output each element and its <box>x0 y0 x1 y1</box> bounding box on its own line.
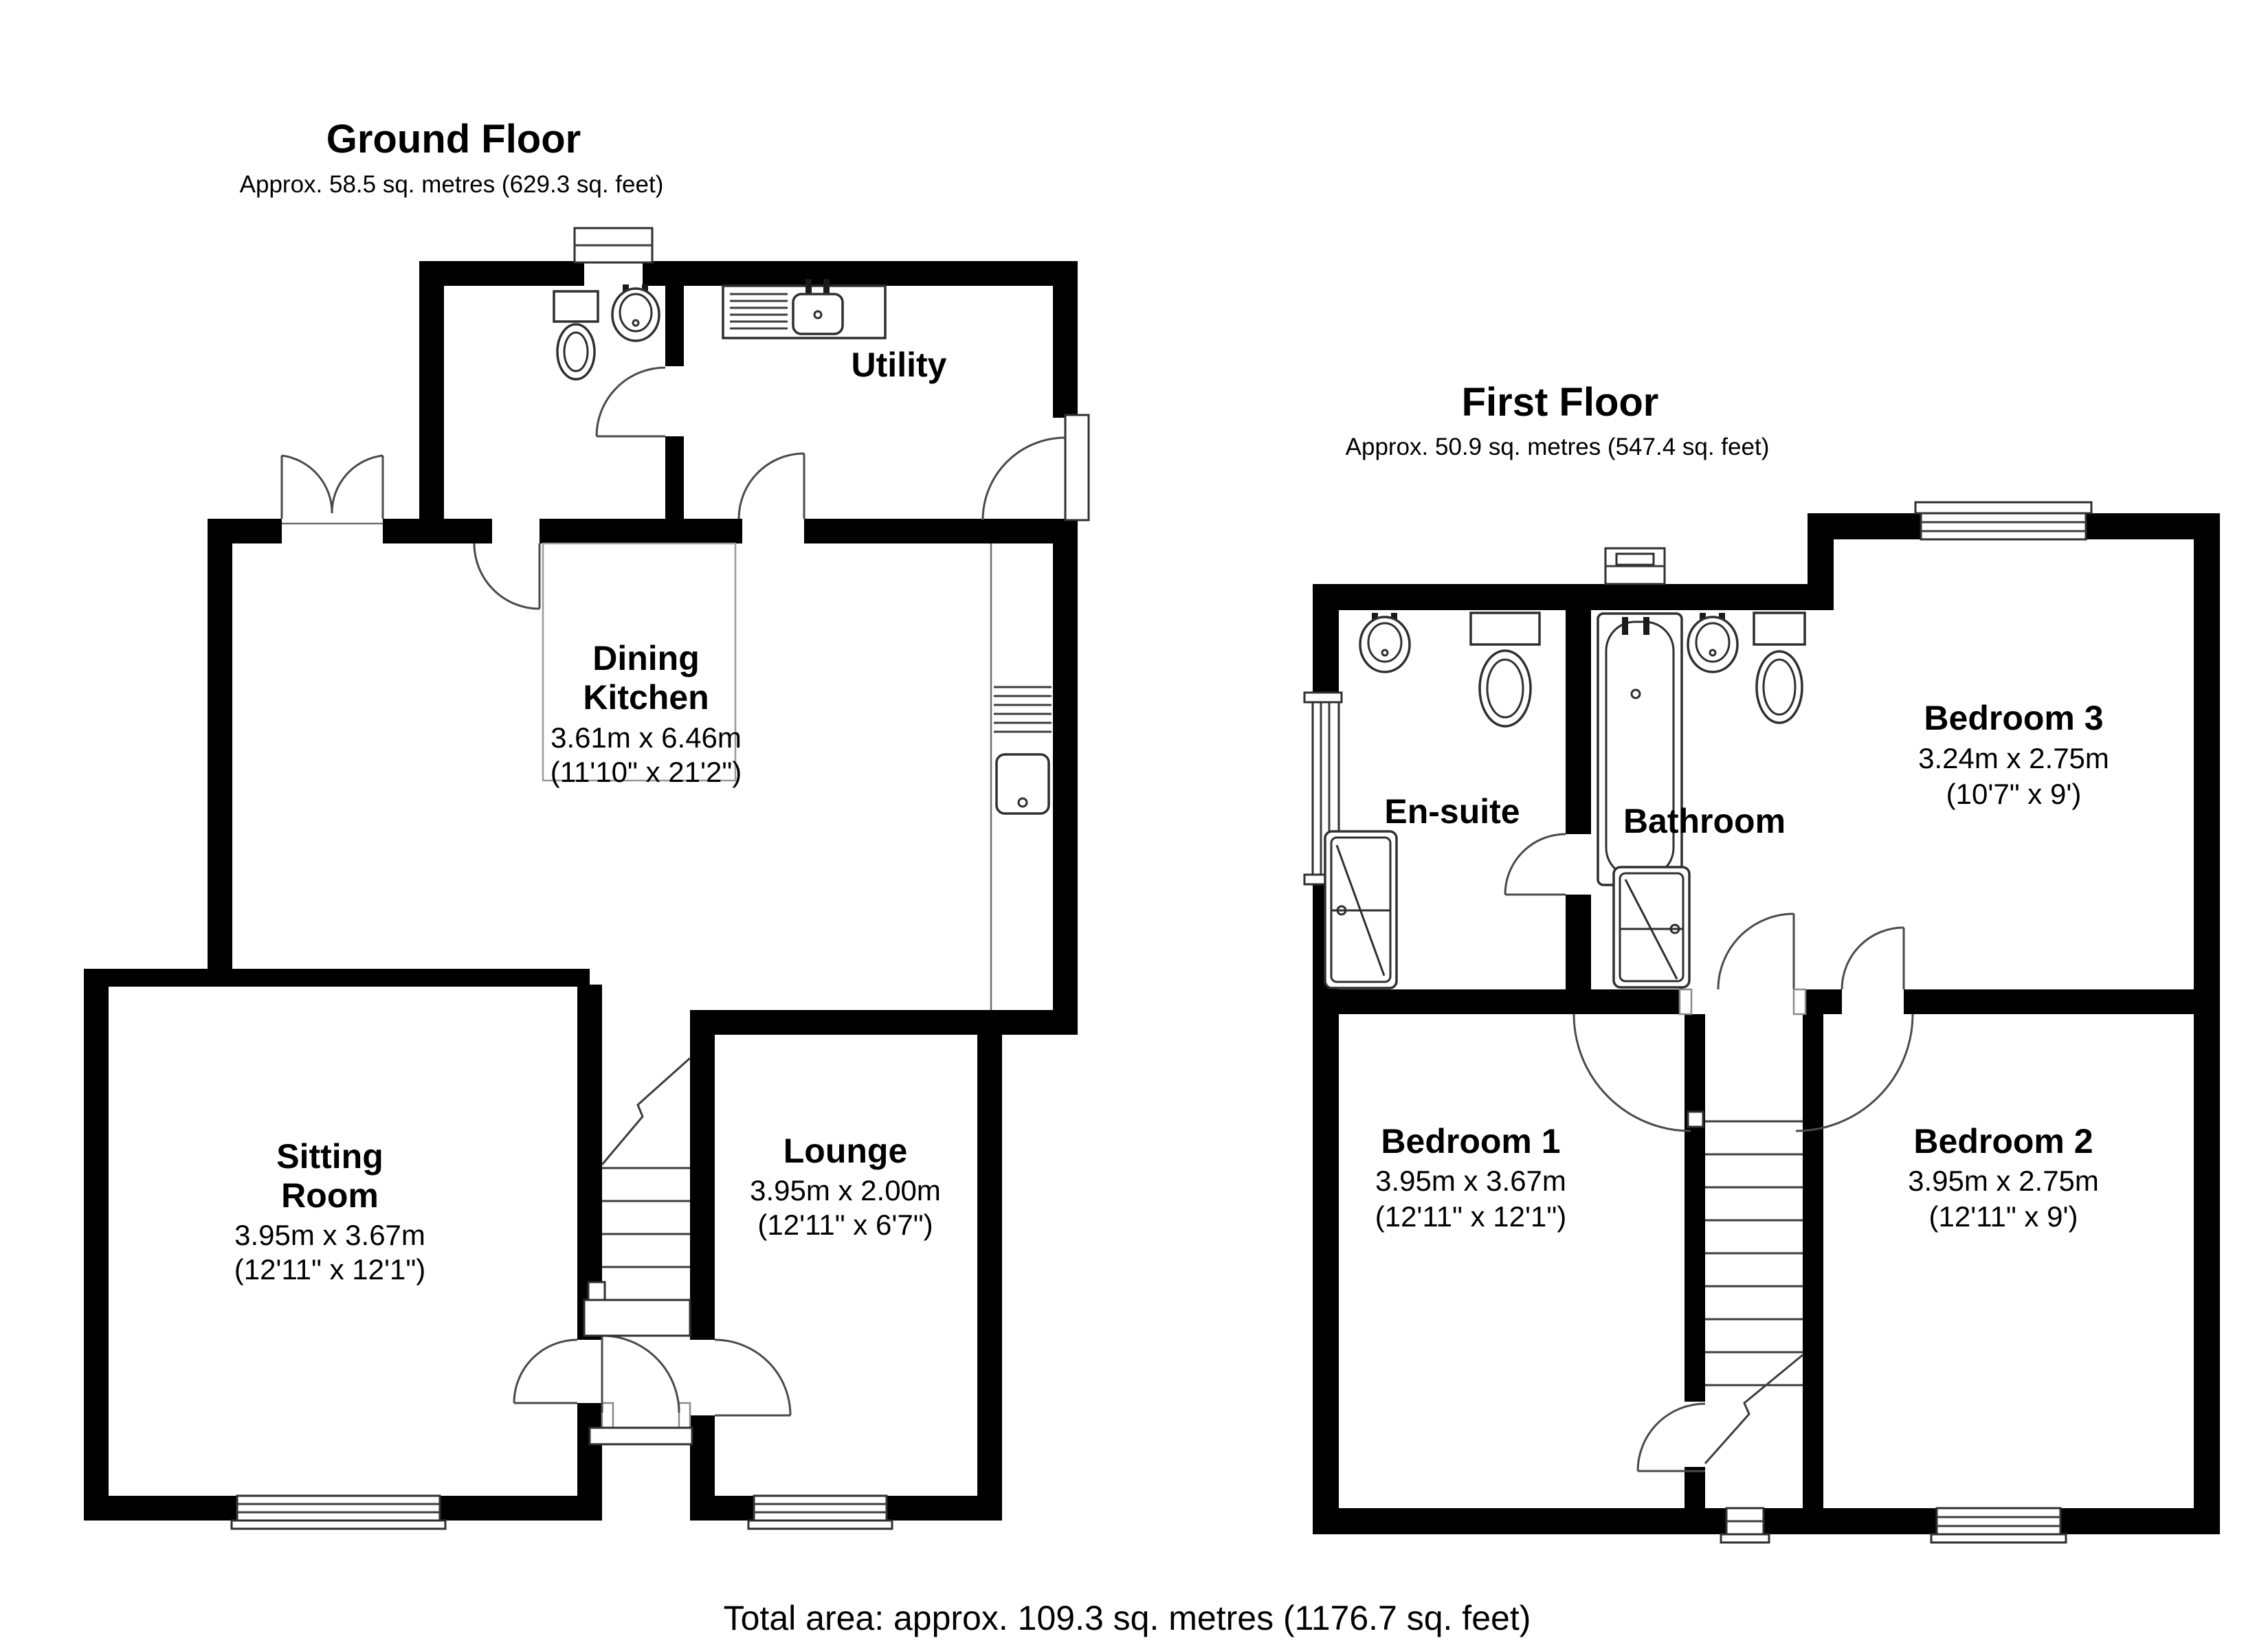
first-floor-subtitle: Approx. 50.9 sq. metres (547.4 sq. feet) <box>1346 434 1770 460</box>
bathroom-shower-icon <box>1614 867 1689 987</box>
ground-floor-subtitle: Approx. 58.5 sq. metres (629.3 sq. feet) <box>240 171 664 198</box>
sitting-room-imperial: (12'11" x 12'1") <box>234 1253 426 1286</box>
dining-kitchen-metric: 3.61m x 6.46m <box>551 721 742 754</box>
en-suite-label: En-suite <box>1384 792 1520 831</box>
toilet-icon <box>554 291 598 379</box>
sitting-room-window <box>232 1496 445 1529</box>
en-suite-shower-icon <box>1325 831 1397 988</box>
lounge-label: Lounge <box>783 1132 908 1170</box>
lounge-metric: 3.95m x 2.00m <box>750 1174 941 1207</box>
sitting-room-label-2: Room <box>281 1176 379 1215</box>
sitting-room-metric: 3.95m x 3.67m <box>234 1219 425 1251</box>
bedroom3-label: Bedroom 3 <box>1924 699 2103 737</box>
airing-cupboard <box>1605 548 1665 584</box>
page-background <box>0 0 2268 1649</box>
lounge-window <box>748 1496 892 1529</box>
utility-label: Utility <box>852 346 947 384</box>
dining-kitchen-label-2: Kitchen <box>583 678 709 717</box>
first-floor-title: First Floor <box>1462 380 1659 425</box>
total-area-text: Total area: approx. 109.3 sq. metres (11… <box>724 1599 1531 1637</box>
landing-window <box>1721 1508 1769 1543</box>
bedroom2-metric: 3.95m x 2.75m <box>1908 1165 2099 1197</box>
utility-sink-icon <box>723 279 885 338</box>
dining-kitchen-label-1: Dining <box>592 639 700 677</box>
bedroom1-label: Bedroom 1 <box>1381 1122 1560 1160</box>
bedroom2-label: Bedroom 2 <box>1913 1122 2093 1160</box>
lounge-imperial: (12'11" x 6'7") <box>757 1209 933 1241</box>
dining-kitchen-imperial: (11'10" x 21'2") <box>551 756 742 788</box>
bath-icon <box>1598 614 1682 885</box>
ground-floor-title: Ground Floor <box>326 117 581 161</box>
bedroom1-metric: 3.95m x 3.67m <box>1375 1165 1566 1197</box>
back-door-canopy <box>575 228 652 262</box>
bedroom3-imperial: (10'7" x 9') <box>1946 778 2082 810</box>
bedroom2-imperial: (12'11" x 9') <box>1929 1200 2078 1233</box>
bedroom1-imperial: (12'11" x 12'1") <box>1375 1200 1567 1233</box>
bedroom3-metric: 3.24m x 2.75m <box>1918 742 2109 774</box>
sitting-room-label-1: Sitting <box>276 1137 383 1176</box>
kitchen-sink-icon <box>997 754 1049 814</box>
bathroom-toilet-icon <box>1754 613 1805 723</box>
bedroom2-window <box>1931 1508 2066 1543</box>
bedroom3-window <box>1915 502 2091 539</box>
bathroom-label: Bathroom <box>1623 802 1786 840</box>
